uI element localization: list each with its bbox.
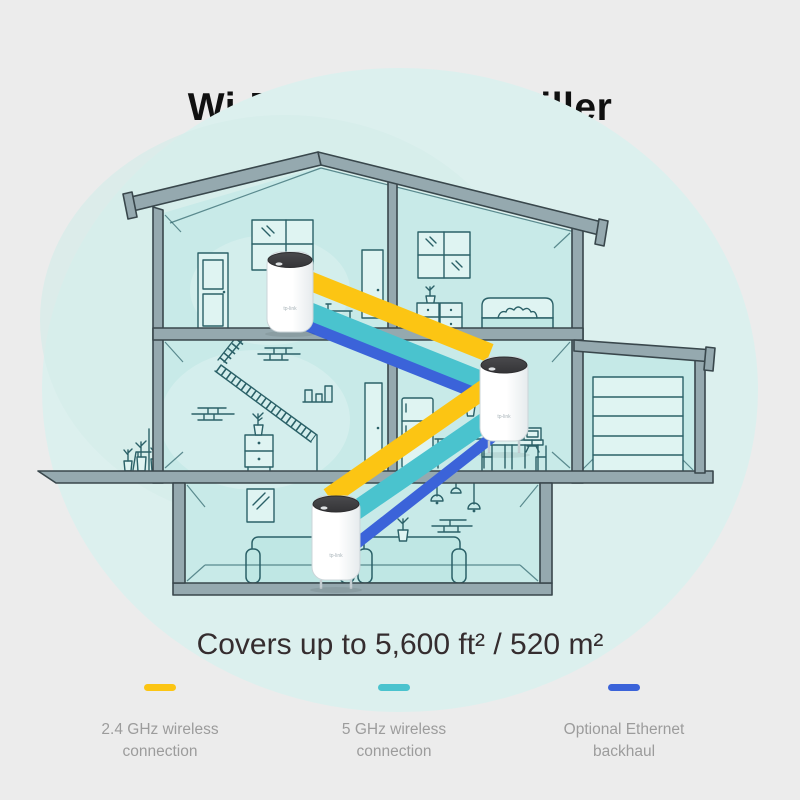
legend-item-2-4ghz: 2.4 GHz wireless connection	[60, 684, 260, 764]
garage-door	[593, 377, 683, 475]
legend-label: 5 GHz wireless connection	[294, 719, 494, 764]
legend-item-ethernet: Optional Ethernet backhaul	[524, 684, 724, 764]
picture-frame-icon	[247, 489, 274, 522]
house-illustration: tp-link tp-link tp-link	[0, 0, 800, 800]
legend-item-5ghz: 5 GHz wireless connection	[294, 684, 494, 764]
deco-logo: tp-link	[329, 553, 343, 559]
ground-slab	[173, 583, 552, 595]
deco-logo: tp-link	[497, 414, 511, 420]
legend-dash-5ghz-icon	[378, 684, 410, 691]
deco-unit-3: tp-link	[310, 496, 362, 593]
garage-right-wall	[695, 359, 705, 473]
ground-right-wall	[540, 483, 552, 583]
deco-unit-1: tp-link	[265, 252, 315, 337]
marketing-banner: Wi-Fi Dead Zone Killer	[0, 0, 800, 800]
legend-dash-2-4ghz-icon	[144, 684, 176, 691]
sofa-icon	[358, 537, 466, 583]
coverage-text: Covers up to 5,600 ft² / 520 m²	[0, 628, 800, 662]
right-wall	[572, 227, 583, 483]
legend-label: Optional Ethernet backhaul	[524, 719, 724, 764]
left-wall	[153, 207, 163, 483]
ground-left-wall	[173, 483, 185, 583]
bed-icon	[482, 298, 553, 332]
legend-label: 2.4 GHz wireless connection	[60, 719, 260, 764]
window-icon	[418, 232, 470, 278]
legend-dash-ethernet-icon	[608, 684, 640, 691]
deco-logo: tp-link	[283, 306, 297, 312]
